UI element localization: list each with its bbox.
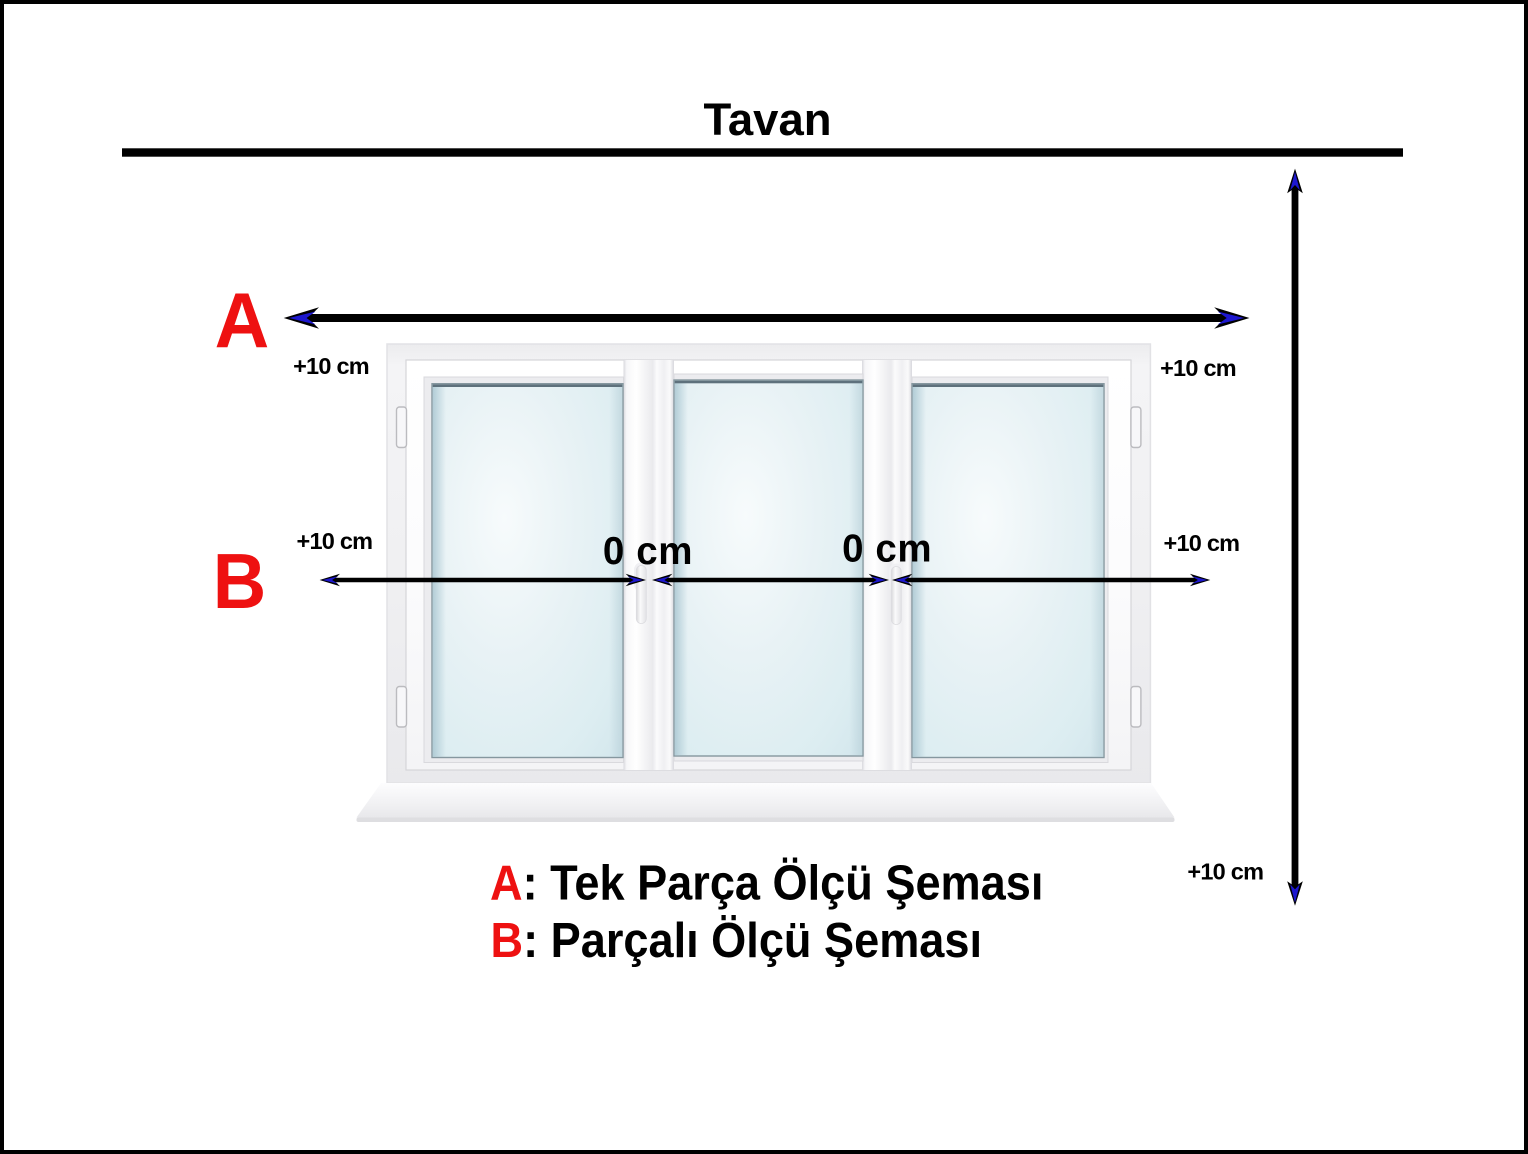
svg-text:+10 cm: +10 cm — [1160, 355, 1236, 381]
svg-text:B: Parçalı Ölçü Şeması: B: Parçalı Ölçü Şeması — [491, 912, 983, 967]
svg-text:A: A — [215, 277, 270, 364]
svg-text:+10 cm: +10 cm — [296, 528, 372, 554]
svg-text:+10 cm: +10 cm — [293, 353, 369, 379]
svg-text:A: Tek Parça Ölçü Şeması: A: Tek Parça Ölçü Şeması — [490, 855, 1043, 910]
svg-text:+10 cm: +10 cm — [1187, 858, 1263, 884]
svg-text:Tavan: Tavan — [703, 94, 831, 145]
svg-text:0 cm: 0 cm — [603, 530, 693, 573]
svg-text:0 cm: 0 cm — [842, 528, 932, 571]
svg-text:+10 cm: +10 cm — [1163, 530, 1239, 556]
svg-text:B: B — [213, 538, 267, 625]
